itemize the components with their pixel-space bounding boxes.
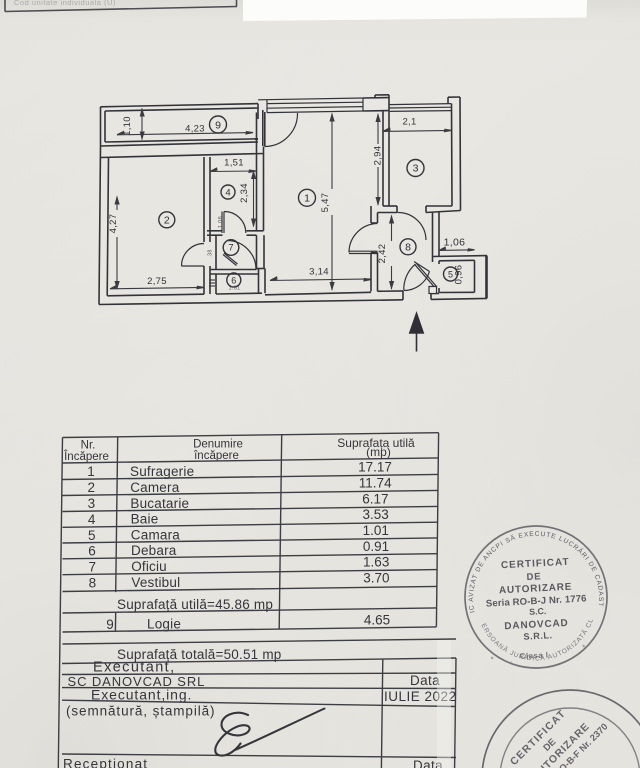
svg-text:încăpere: încăpere [193, 450, 239, 462]
svg-text:3.53: 3.53 [362, 507, 388, 522]
svg-text:0.91: 0.91 [363, 539, 389, 554]
svg-text:7: 7 [228, 243, 233, 254]
svg-text:Suprafață utilă=45.86 mp: Suprafață utilă=45.86 mp [117, 597, 273, 612]
svg-text:11.74: 11.74 [359, 475, 392, 490]
svg-text:0,96: 0,96 [454, 265, 465, 285]
svg-text:6: 6 [231, 275, 236, 285]
svg-text:2,1: 2,1 [402, 117, 416, 128]
svg-text:(semnătură, ștampilă): (semnătură, ștampilă) [66, 704, 215, 719]
svg-text:7: 7 [88, 560, 96, 575]
svg-text:1: 1 [87, 464, 95, 479]
svg-text:2: 2 [87, 480, 95, 495]
svg-text:Vestibul: Vestibul [131, 575, 180, 590]
svg-text:6: 6 [88, 544, 96, 559]
svg-text:S.C.: S.C. [529, 606, 547, 617]
svg-text:Camara: Camara [131, 527, 181, 542]
svg-text:Cod unitate individuala (U): Cod unitate individuala (U) [14, 0, 116, 7]
svg-text:1,51: 1,51 [224, 158, 244, 169]
svg-text:5: 5 [448, 269, 453, 279]
svg-text:1.08: 1.08 [218, 216, 224, 228]
svg-text:S.R.L.: S.R.L. [523, 630, 553, 642]
svg-text:4: 4 [225, 188, 230, 199]
svg-text:8: 8 [405, 241, 411, 253]
svg-text:Debara: Debara [131, 543, 177, 558]
svg-text:Logie: Logie [147, 617, 181, 632]
svg-text:(mp): (mp) [366, 445, 391, 459]
svg-text:Denumire: Denumire [193, 439, 243, 451]
svg-text:Oficiu: Oficiu [131, 559, 167, 574]
svg-text:4: 4 [88, 512, 96, 527]
svg-text:Bucatarie: Bucatarie [130, 496, 189, 511]
svg-text:Încăpere: Încăpere [63, 450, 109, 463]
svg-text:Sufragerie: Sufragerie [130, 464, 194, 479]
svg-text:Baie: Baie [131, 512, 159, 527]
svg-text:Clasa I: Clasa I [520, 650, 549, 660]
svg-text:6.17: 6.17 [362, 491, 388, 506]
svg-text:Executant,ing.: Executant,ing. [91, 687, 192, 703]
svg-text:3.70: 3.70 [363, 571, 389, 586]
svg-text:Data: Data [410, 673, 440, 688]
svg-text:3: 3 [88, 496, 96, 511]
svg-text:1: 1 [304, 193, 310, 205]
svg-text:5: 5 [88, 528, 96, 543]
svg-text:2,42: 2,42 [377, 244, 388, 264]
svg-text:.38: .38 [208, 249, 214, 258]
svg-text:DE: DE [526, 571, 541, 583]
svg-text:1,10: 1,10 [122, 116, 133, 136]
svg-text:2: 2 [164, 215, 170, 227]
svg-text:2,75: 2,75 [147, 276, 167, 287]
svg-text:9: 9 [215, 119, 221, 131]
svg-text:17.17: 17.17 [358, 460, 392, 475]
svg-text:4,27: 4,27 [108, 214, 119, 234]
svg-text:3,14: 3,14 [309, 267, 329, 278]
svg-text:2,94: 2,94 [373, 146, 384, 166]
svg-text:Camera: Camera [130, 480, 180, 495]
svg-text:2,34: 2,34 [239, 183, 250, 203]
svg-text:9: 9 [106, 617, 114, 632]
svg-text:3: 3 [413, 163, 419, 175]
svg-text:4,23: 4,23 [185, 124, 205, 135]
svg-text:1.63: 1.63 [363, 555, 389, 570]
svg-text:Nr.: Nr. [81, 440, 96, 452]
svg-text:1,06: 1,06 [444, 237, 466, 249]
svg-text:5,47: 5,47 [320, 193, 331, 213]
svg-text:Recepționat: Recepționat [63, 757, 148, 768]
svg-text:8: 8 [89, 575, 97, 590]
svg-text:1.01: 1.01 [363, 523, 389, 538]
svg-text:4.65: 4.65 [364, 613, 390, 628]
